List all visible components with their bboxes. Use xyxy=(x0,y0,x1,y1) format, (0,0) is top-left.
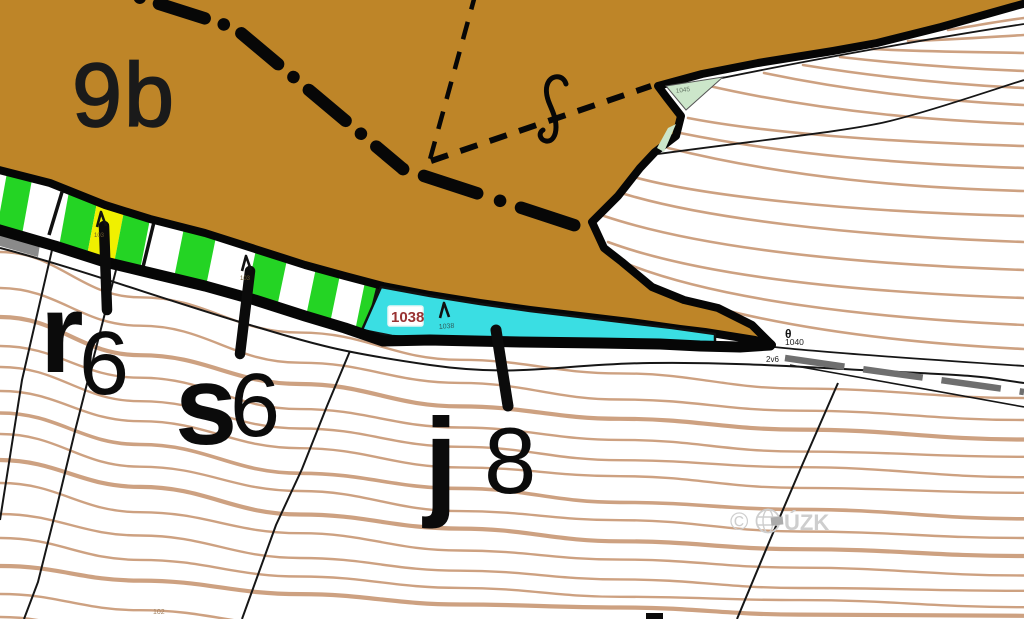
svg-text:r: r xyxy=(40,271,84,396)
svg-text:1040: 1040 xyxy=(785,337,804,347)
svg-text:2v6: 2v6 xyxy=(766,355,779,364)
svg-text:©: © xyxy=(730,508,749,536)
svg-text:8: 8 xyxy=(484,408,536,513)
svg-text:ÚZK: ÚZK xyxy=(784,510,829,535)
svg-text:102: 102 xyxy=(153,609,165,616)
svg-text:1038: 1038 xyxy=(439,323,455,331)
svg-text:j: j xyxy=(422,393,458,529)
svg-text:s: s xyxy=(175,343,237,468)
svg-text:103: 103 xyxy=(240,276,251,282)
svg-text:9b: 9b xyxy=(72,46,176,146)
svg-text:1038: 1038 xyxy=(391,309,424,326)
svg-text:6: 6 xyxy=(79,314,129,414)
svg-text:6: 6 xyxy=(230,356,280,456)
svg-text:103: 103 xyxy=(94,233,105,239)
